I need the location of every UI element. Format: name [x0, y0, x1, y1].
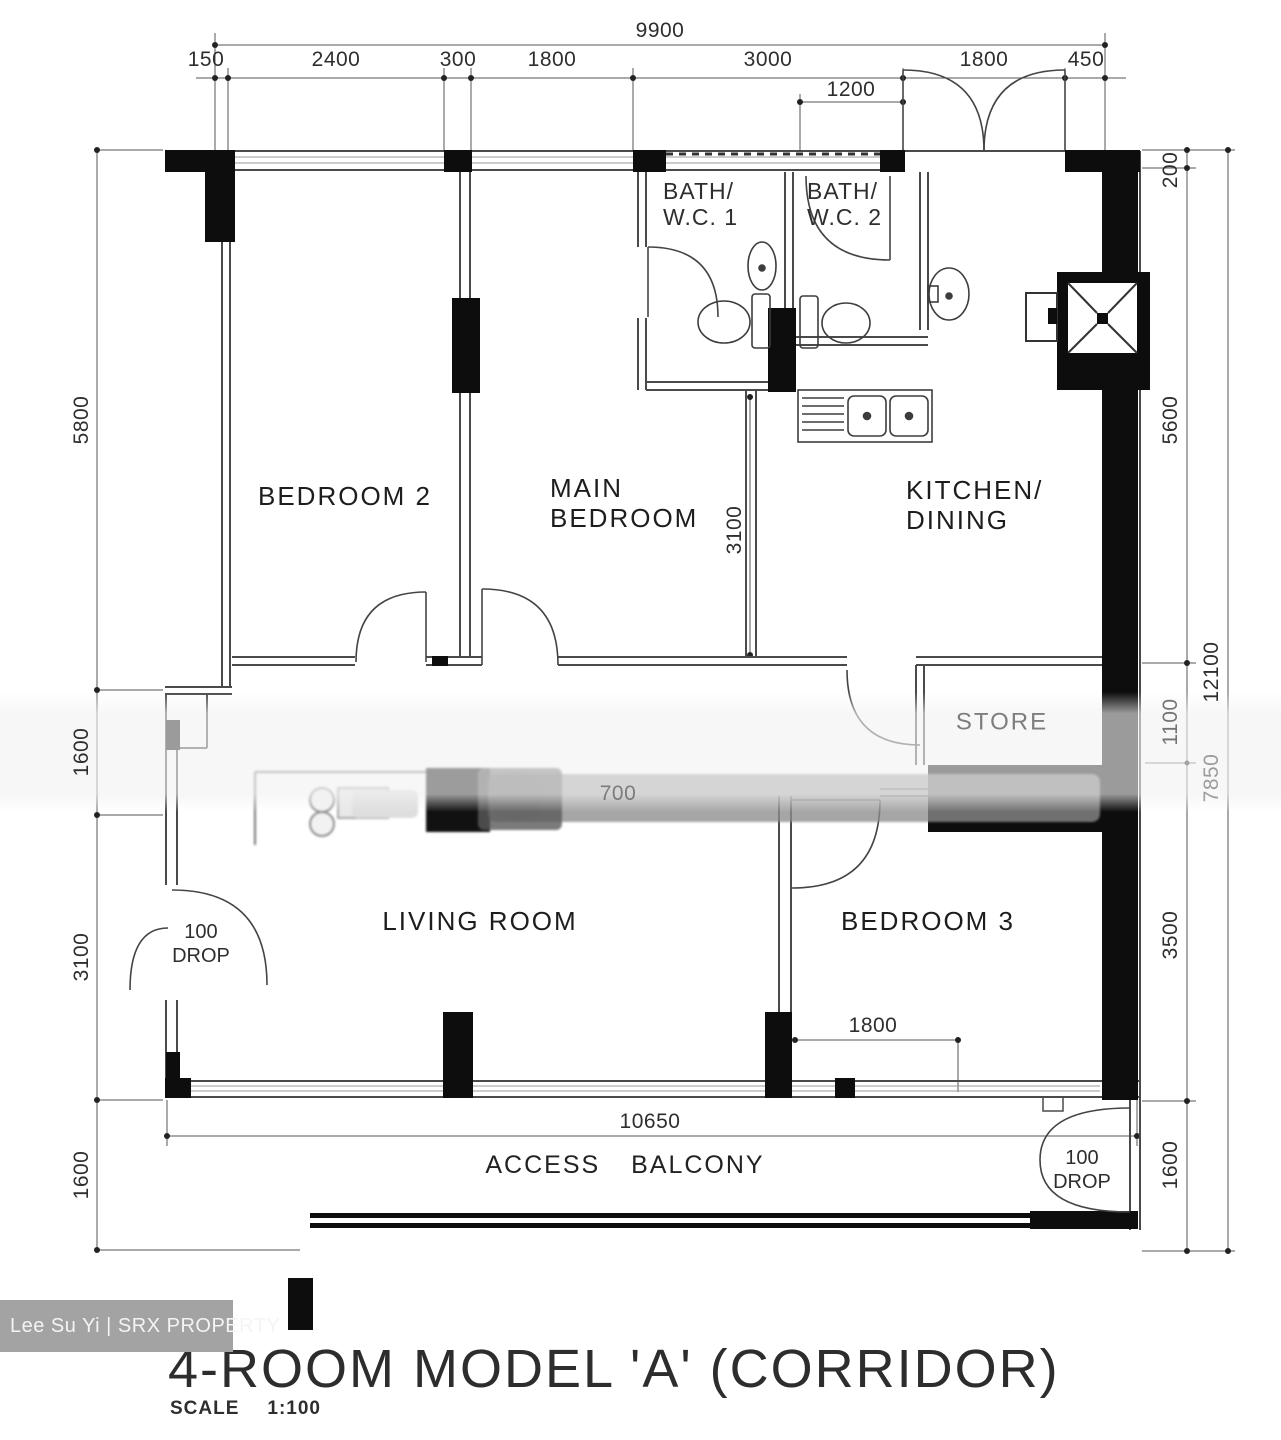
room-label-bedroom3: BEDROOM 3 [841, 907, 1015, 937]
access-balcony-label: ACCESS BALCONY [485, 1151, 764, 1180]
dim-left-3100: 3100 [70, 933, 94, 982]
dim-right-1100: 1100 [1159, 698, 1183, 745]
entry-door-arc-outer [130, 928, 168, 990]
scale-label: SCALE [170, 1398, 239, 1419]
dim-top-seg-450: 450 [1068, 48, 1105, 72]
dim-top-seg-2400: 2400 [312, 48, 361, 72]
dim-1200: 1200 [827, 78, 876, 102]
thin-walls [165, 151, 1140, 1230]
scale-row: SCALE1:100 [170, 1398, 349, 1420]
bedroom2-door-arc [356, 592, 426, 662]
dim-top-seg-1800b: 1800 [960, 48, 1009, 72]
watermark-band [0, 692, 1281, 812]
main-bedroom-door-arc [482, 589, 558, 665]
room-label-bedroom2: BEDROOM 2 [258, 482, 432, 512]
dim-right-total: 12100 [1200, 642, 1224, 703]
scale-value: 1:100 [267, 1398, 321, 1419]
drop-label-right: 100 DROP [1053, 1146, 1111, 1194]
dim-left-1600b: 1600 [70, 1151, 94, 1200]
door-arcs [130, 70, 1130, 1212]
window-lines [190, 157, 1100, 1091]
dim-top-seg-1800: 1800 [528, 48, 577, 72]
room-label-bath2: BATH/ W.C. 2 [807, 178, 882, 230]
dim-corridor-700: 700 [600, 782, 637, 806]
room-label-kitchen: KITCHEN/ DINING [906, 476, 1043, 535]
basin2-icon [928, 268, 969, 320]
dim-left-1600a: 1600 [70, 728, 94, 777]
dim-top-seg-150: 150 [188, 48, 225, 72]
room-label-main-bedroom: MAIN BEDROOM [550, 474, 698, 533]
dim-top-seg-300: 300 [440, 48, 477, 72]
room-label-store: STORE [956, 708, 1048, 735]
dim-top-seg-3000: 3000 [744, 48, 793, 72]
dim-main-bedroom-3100: 3100 [723, 506, 747, 555]
dim-right-5600: 5600 [1159, 396, 1183, 445]
toilet1-icon [698, 294, 770, 348]
drop-label-left: 100 DROP [172, 920, 230, 968]
kitchen-sink-icon [798, 390, 932, 442]
room-label-bath1: BATH/ W.C. 1 [663, 178, 738, 230]
dim-left-5800: 5800 [70, 396, 94, 445]
dim-right-200: 200 [1159, 152, 1183, 189]
watermark-text: Lee Su Yi | SRX PROPERTY [0, 1315, 280, 1338]
dim-right-1600: 1600 [1159, 1141, 1183, 1190]
toilet2-icon [800, 296, 870, 348]
plan-title: 4-ROOM MODEL 'A' (CORRIDOR) [168, 1338, 958, 1400]
dim-right-3500: 3500 [1159, 911, 1183, 960]
dim-right-faint: 7850 [1200, 754, 1224, 803]
dim-bottom-10650: 10650 [620, 1110, 681, 1134]
dim-bedroom3-1800: 1800 [849, 1014, 898, 1038]
dim-top-total: 9900 [636, 19, 685, 43]
entrance-door-arc-right [984, 70, 1065, 151]
basin1-icon [748, 242, 776, 290]
service-shaft [1026, 272, 1150, 390]
room-label-living: LIVING ROOM [382, 907, 577, 937]
watermark-bar: Lee Su Yi | SRX PROPERTY [0, 1300, 233, 1352]
floorplan-page: 9900 150 2400 300 1800 3000 1800 450 120… [0, 0, 1281, 1440]
entrance-door-arc-left [903, 70, 984, 151]
